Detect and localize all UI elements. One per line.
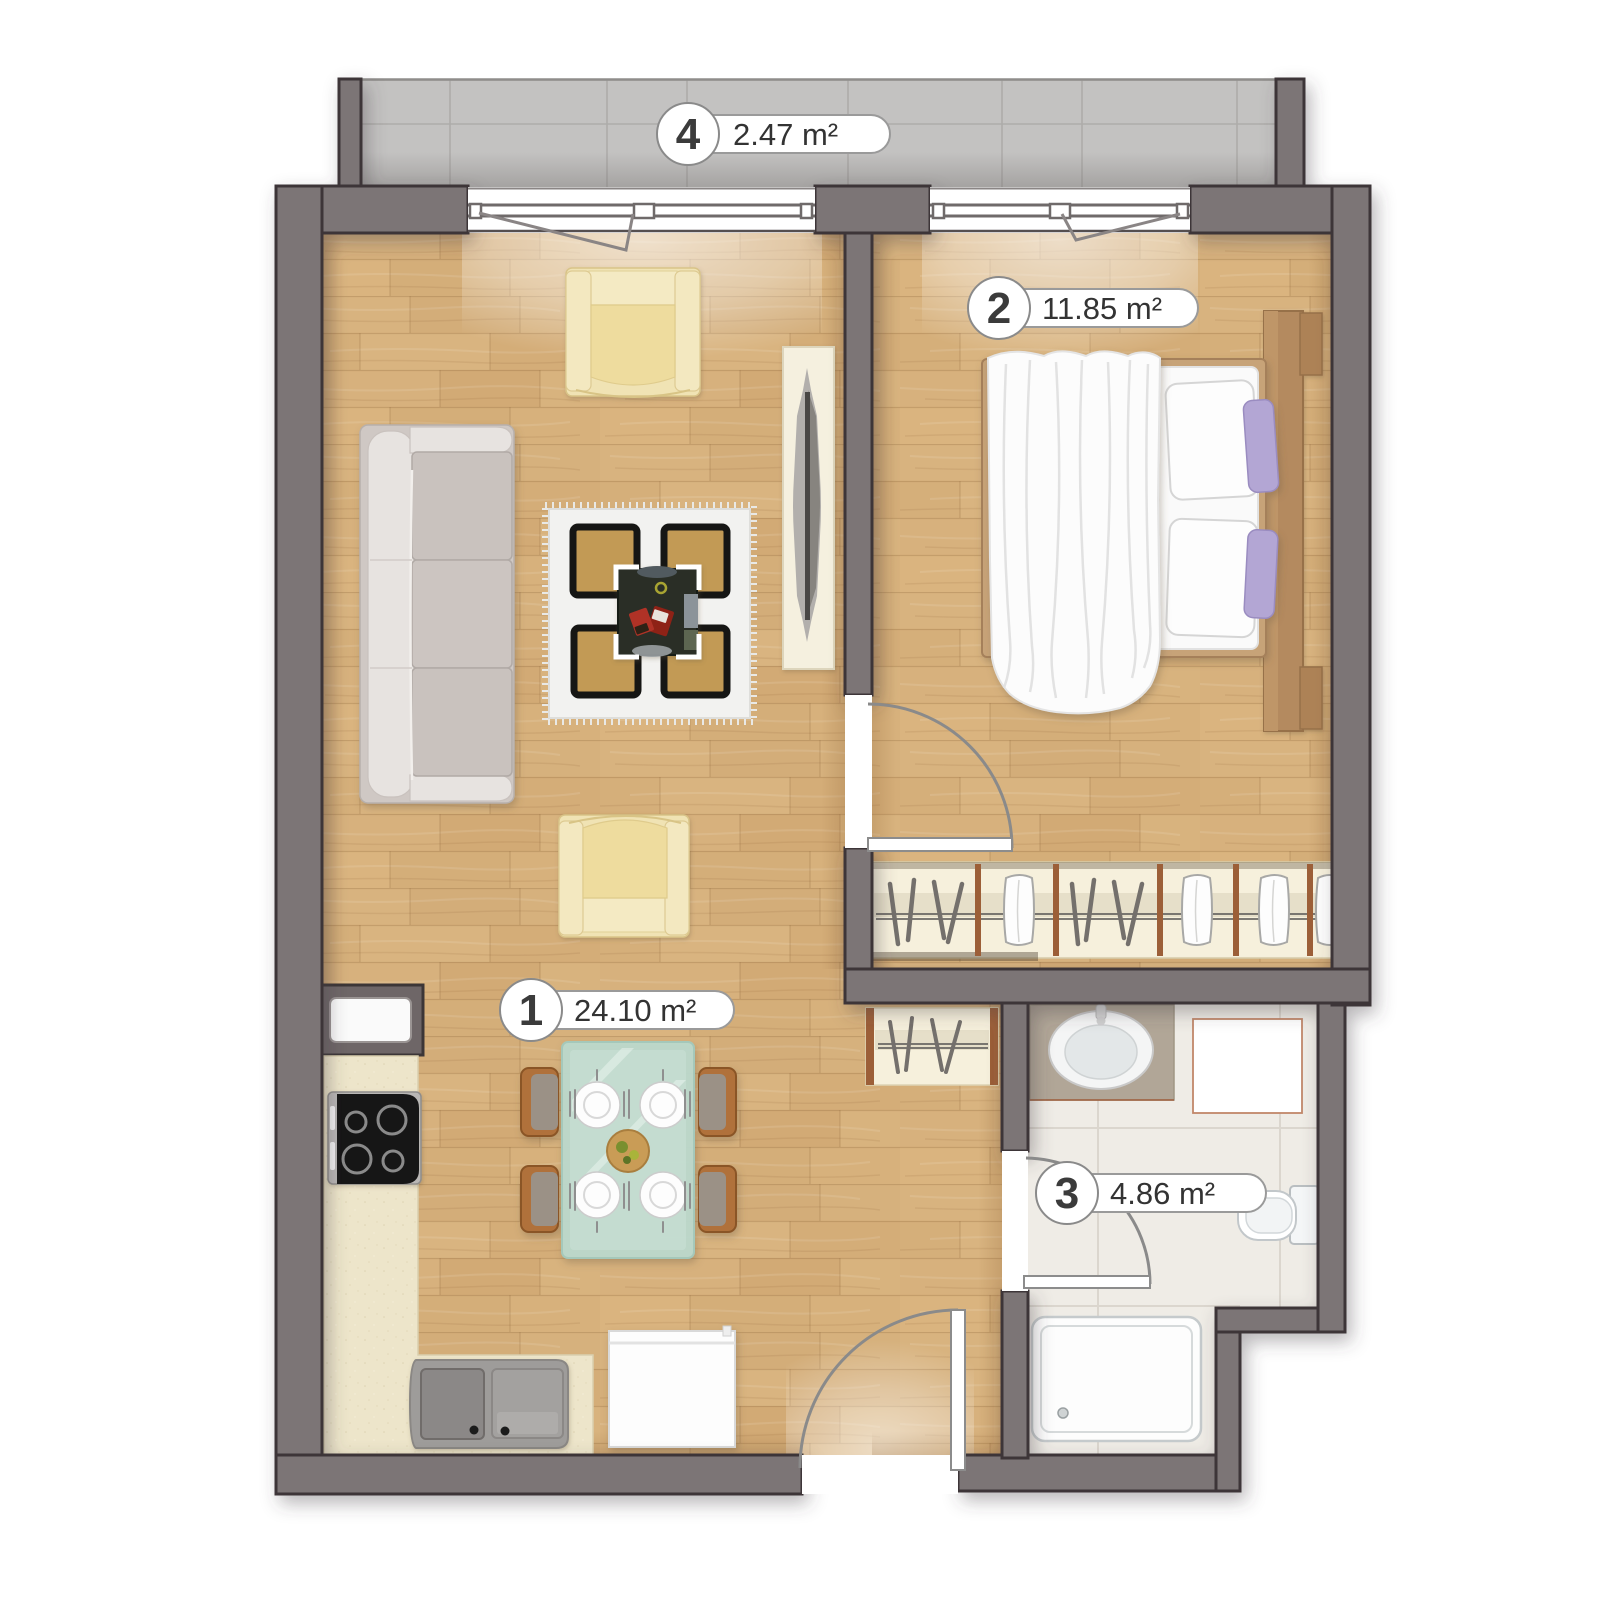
svg-text:2: 2 <box>987 284 1011 333</box>
svg-text:4.86 m²: 4.86 m² <box>1110 1176 1215 1211</box>
svg-text:3: 3 <box>1055 1169 1079 1218</box>
svg-text:24.10 m²: 24.10 m² <box>574 993 696 1028</box>
svg-text:4: 4 <box>676 110 701 159</box>
svg-text:1: 1 <box>519 986 543 1035</box>
svg-text:2.47 m²: 2.47 m² <box>733 117 838 152</box>
svg-text:11.85 m²: 11.85 m² <box>1042 291 1162 326</box>
